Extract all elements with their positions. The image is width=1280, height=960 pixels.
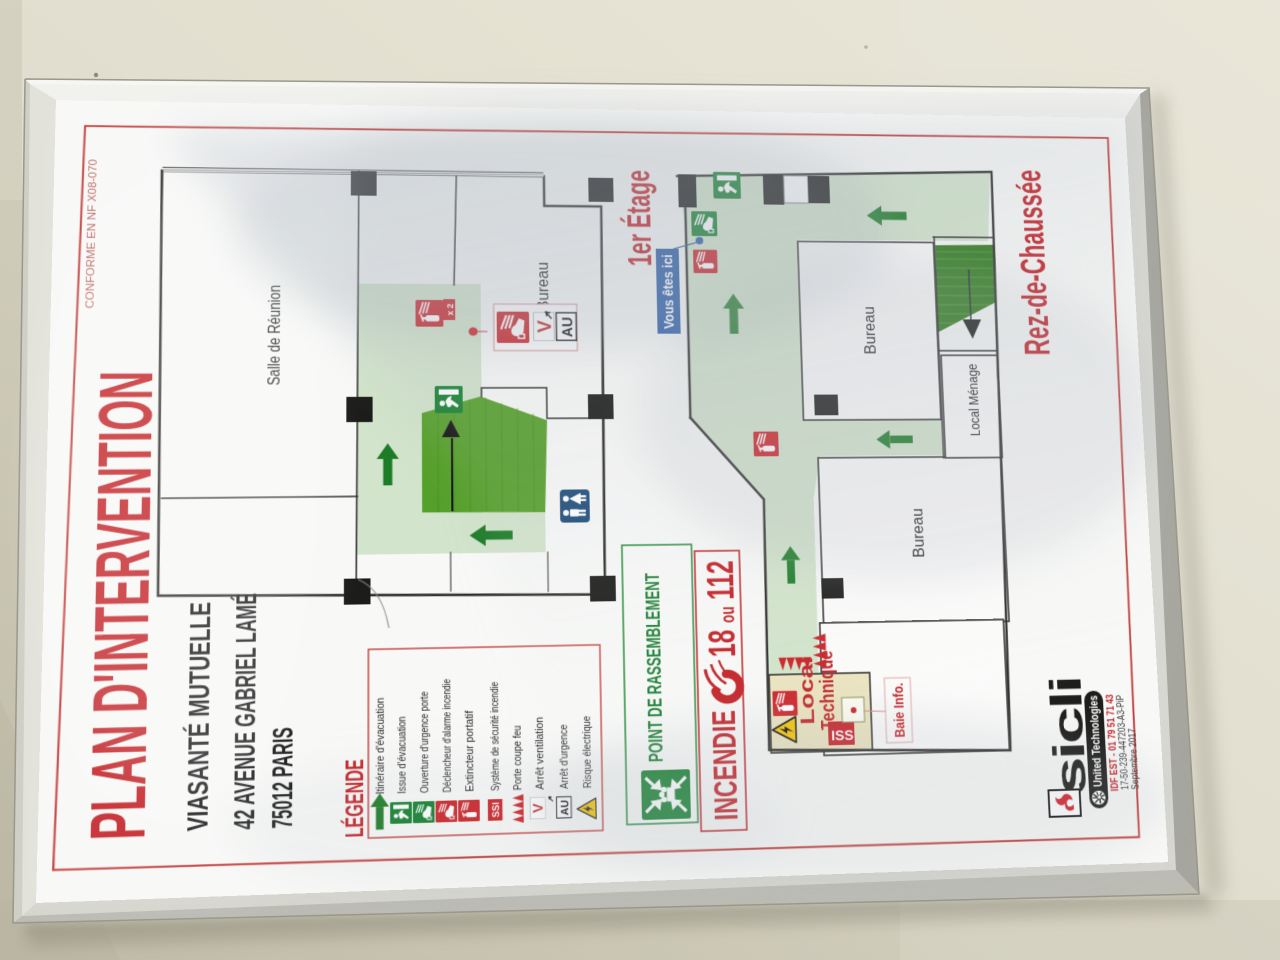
svg-text:POINT DE RASSEMBLEMENT: POINT DE RASSEMBLEMENT: [640, 573, 668, 763]
svg-text:Itinéraire d'évacuation: Itinéraire d'évacuation: [375, 697, 387, 794]
svg-text:Baie Info.: Baie Info.: [892, 683, 909, 738]
svg-text:Bureau: Bureau: [908, 508, 928, 558]
svg-text:Arrêt d'urgence: Arrêt d'urgence: [558, 724, 570, 789]
svg-text:Extincteur portatif: Extincteur portatif: [464, 710, 476, 792]
svg-text:VIASANTÉ MUTUELLE: VIASANTÉ MUTUELLE: [180, 602, 217, 832]
svg-text:75012 PARIS: 75012 PARIS: [266, 727, 300, 829]
svg-text:LÉGENDE: LÉGENDE: [341, 759, 369, 838]
svg-text:Vous êtes ici: Vous êtes ici: [661, 254, 677, 329]
svg-text:INCENDIE: INCENDIE: [705, 710, 746, 821]
svg-text:Risque électrique: Risque électrique: [581, 716, 594, 789]
svg-text:Déclencheur d'alarme incendie: Déclencheur d'alarme incendie: [442, 679, 454, 793]
svg-text:Porte coupe feu: Porte coupe feu: [512, 725, 524, 790]
svg-text:x 2: x 2: [445, 304, 455, 316]
svg-text:Bureau: Bureau: [533, 262, 552, 311]
svg-text:Système de sécurité incendie: Système de sécurité incendie: [489, 682, 502, 791]
svg-text:PLAN D'INTERVENTION: PLAN D'INTERVENTION: [74, 371, 168, 841]
svg-text:Issue d'évacuation: Issue d'évacuation: [397, 716, 409, 794]
svg-text:Technique: Technique: [816, 650, 840, 730]
svg-text:1er Étage: 1er Étage: [618, 170, 658, 267]
svg-text:42 AVENUE GABRIEL LAMÉ: 42 AVENUE GABRIEL LAMÉ: [227, 593, 263, 830]
svg-text:Salle de Réunion: Salle de Réunion: [264, 285, 284, 385]
svg-text:Bureau: Bureau: [860, 306, 880, 354]
svg-text:Arrêt ventilation: Arrêt ventilation: [534, 717, 546, 790]
svg-text:Ouverture d'urgence porte: Ouverture d'urgence porte: [419, 691, 431, 793]
svg-text:ISS: ISS: [831, 728, 854, 744]
